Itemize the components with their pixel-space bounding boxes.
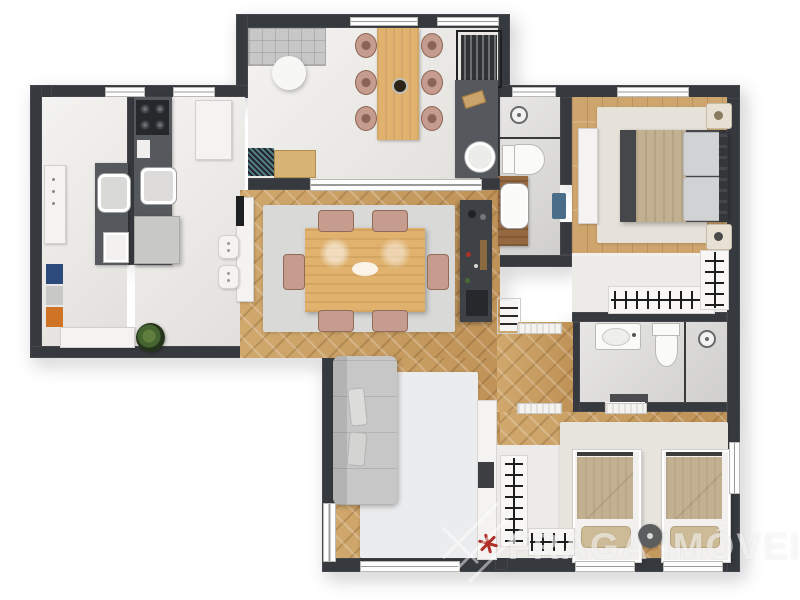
toilet-bowl: [655, 335, 678, 367]
dining-chair: [318, 210, 354, 232]
glass-door-living: [323, 503, 336, 562]
cooktop-4-burners: [136, 100, 169, 135]
nightstand: [706, 103, 732, 129]
bathroom2-door-leaf: [605, 403, 647, 414]
hall-wood-floor: [497, 322, 573, 412]
sofa-pillow: [347, 431, 368, 466]
window-kitchen: [173, 87, 215, 97]
decor-console-wood: [274, 150, 316, 178]
window-service: [105, 87, 145, 97]
outdoor-chair: [355, 106, 377, 131]
bar-stool: [218, 235, 239, 259]
sliding-glass-door: [310, 179, 482, 191]
table-decor-white: [352, 262, 378, 276]
suite-vanity-sink: [501, 184, 528, 228]
tall-cabinet: [195, 100, 232, 160]
wall-suitebath-right-b: [560, 222, 572, 255]
closet-threshold: [572, 253, 700, 256]
floor-cushion-orange: [46, 307, 63, 327]
master-bed: [620, 130, 727, 222]
shower-head: [510, 106, 528, 124]
table-centerpiece: [392, 78, 408, 94]
dining-chair: [283, 254, 305, 290]
bathroom2-vanity: [595, 323, 641, 350]
dining-chair: [372, 210, 408, 232]
bench: [60, 327, 135, 348]
shower-head: [698, 330, 716, 348]
toilet-bowl: [514, 144, 545, 175]
outdoor-chair: [421, 106, 443, 131]
wall-suitebath-bottom: [490, 255, 572, 267]
outdoor-chair: [421, 70, 443, 95]
floor-cushion-gray: [46, 286, 63, 305]
potted-plant: [136, 323, 165, 352]
laundry-sink: [98, 174, 130, 212]
decor-console-mosaic: [248, 148, 274, 176]
laundry-basket: [104, 233, 128, 262]
blue-bath-mat: [552, 193, 566, 219]
sofa: [333, 356, 397, 505]
kitchen-sink: [141, 168, 176, 204]
shower-glass: [500, 137, 560, 139]
dining-chair: [372, 310, 408, 332]
window-suite-bath: [512, 87, 556, 97]
dining-chair: [427, 254, 449, 290]
balcony-round-sink: [465, 142, 495, 172]
bar-cabinet: [460, 200, 492, 322]
window-master-bedroom: [617, 87, 689, 97]
bar-stool: [218, 265, 239, 289]
window-bedroom2-right: [729, 442, 740, 494]
fridge: [134, 216, 180, 264]
floor-cushion-navy: [46, 264, 63, 284]
bedroom2-door-leaf: [517, 403, 562, 414]
round-coffee-table: [272, 56, 306, 90]
outdoor-chair: [355, 33, 377, 58]
hanger-rack-vertical: [700, 250, 729, 310]
master-dresser: [578, 128, 598, 224]
bathroom-shelf: [610, 394, 648, 402]
outdoor-chair: [421, 33, 443, 58]
outdoor-chair: [355, 70, 377, 95]
wall-bedroom2-top-c: [645, 402, 727, 412]
balcony-rail-glass: [350, 17, 418, 26]
shower-glass: [684, 322, 686, 402]
wall-balcony-bottom-a: [248, 178, 310, 190]
washing-machine: [44, 165, 66, 244]
tv: [478, 462, 494, 488]
dining-chair: [318, 310, 354, 332]
kitchen-towel: [137, 140, 150, 158]
peninsula-dark-accent: [236, 196, 244, 226]
floor-plan-canvas: FRAGA IMÓVEIS: [0, 0, 800, 600]
closet-door-leaf: [517, 323, 562, 334]
hanger-rack-horizontal: [608, 286, 715, 314]
wall-suitebath-right-a: [560, 97, 572, 185]
nightstand: [706, 224, 732, 250]
wall-balcony-bottom-b: [480, 178, 500, 190]
balcony-rail-glass: [437, 17, 499, 26]
watermark-brand-text: FRAGA IMÓVEIS: [508, 526, 800, 568]
wall-leftwing-left: [30, 85, 42, 358]
